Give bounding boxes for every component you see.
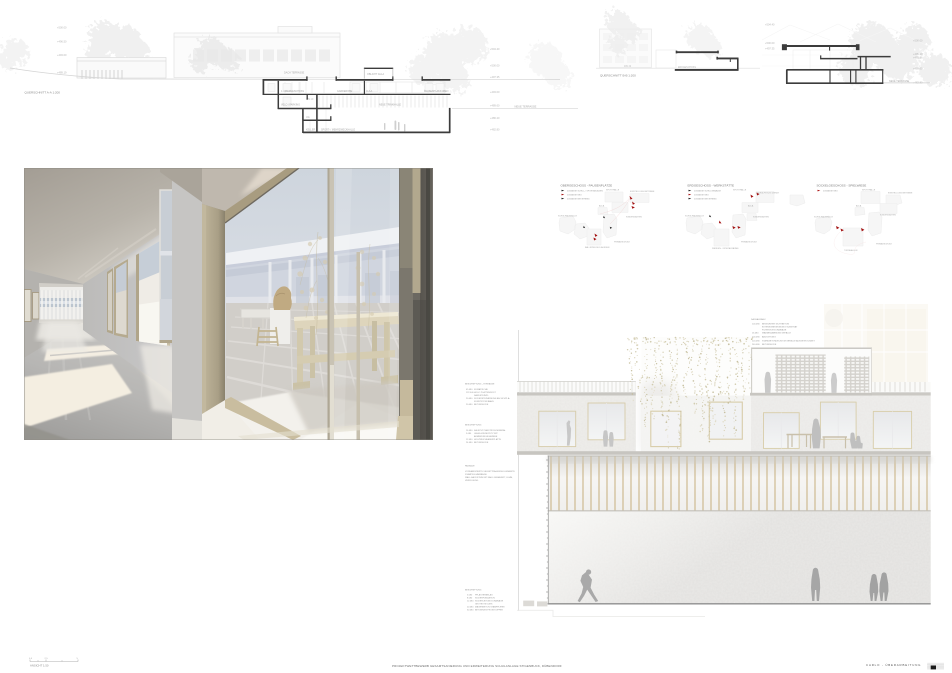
svg-text:ERDGESCHOSS: ERDGESCHOSS bbox=[678, 67, 696, 69]
svg-text:BESCHRIFTUNG - TERRASSE: BESCHRIFTUNG - TERRASSE bbox=[465, 383, 495, 386]
svg-text:+486.20: +486.20 bbox=[490, 116, 500, 120]
svg-text:20.080: 20.080 bbox=[467, 607, 474, 609]
svg-text:16.080: 16.080 bbox=[466, 430, 473, 432]
svg-text:KELLER: KELLER bbox=[306, 129, 315, 132]
svg-text:+489.60: +489.60 bbox=[913, 66, 923, 70]
svg-text:1. OBERGESCHOSS: 1. OBERGESCHOSS bbox=[281, 90, 304, 93]
svg-text:5.080: 5.080 bbox=[466, 433, 472, 435]
svg-text:STAMPFLEHMWÄNDE: STAMPFLEHMWÄNDE bbox=[465, 473, 487, 476]
svg-text:GEOTEXTILVLIES: GEOTEXTILVLIES bbox=[475, 604, 493, 606]
svg-text:220.080: 220.080 bbox=[752, 341, 760, 343]
svg-text:100.080: 100.080 bbox=[752, 324, 760, 326]
svg-text:SCHULHAUSRÜLLR: SCHULHAUSRÜLLR bbox=[685, 214, 704, 217]
svg-text:+504.40: +504.40 bbox=[765, 23, 775, 27]
svg-text:KINDERGARTEN: KINDERGARTEN bbox=[626, 215, 642, 218]
svg-text:SANDSTEINPL.: SANDSTEINPL. bbox=[474, 394, 489, 397]
svg-text:SICKERSTEINBRECHE AN SICHTLA-: SICKERSTEINBRECHE AN SICHTLA- bbox=[474, 397, 510, 400]
svg-text:MAGERBETON STAMPFLEHM: MAGERBETON STAMPFLEHM bbox=[475, 606, 505, 609]
svg-text:24.080: 24.080 bbox=[466, 442, 473, 444]
svg-text:16.080: 16.080 bbox=[752, 333, 759, 335]
svg-text:ARMIERUNGSGEWEBE: ARMIERUNGSGEWEBE bbox=[474, 435, 498, 438]
svg-text:ERDGESCHOSS - WERKSTÄTTE: ERDGESCHOSS - WERKSTÄTTE bbox=[688, 184, 735, 188]
svg-text:NEUE TERRASSE: NEUE TERRASSE bbox=[889, 80, 910, 83]
svg-text:EINSTELLUNG BETRIEBE: EINSTELLUNG BETRIEBE bbox=[630, 191, 655, 193]
svg-text:+497.35: +497.35 bbox=[765, 46, 775, 50]
svg-text:FILTERVLIES DRAINAGE: FILTERVLIES DRAINAGE bbox=[762, 329, 787, 332]
svg-text:VELO / PARKING: VELO / PARKING bbox=[281, 104, 300, 107]
svg-text:489.19: 489.19 bbox=[624, 66, 632, 68]
svg-text:+482.80: +482.80 bbox=[490, 128, 500, 132]
svg-text:SPORT- / MEHRZWECKHALLE: SPORT- / MEHRZWECKHALLE bbox=[321, 129, 355, 132]
svg-text:HOLZWEICHFASERPLATTE: HOLZWEICHFASERPLATTE bbox=[474, 438, 502, 441]
svg-text:FASSADE: FASSADE bbox=[465, 465, 475, 468]
svg-text:30.080: 30.080 bbox=[467, 610, 474, 612]
svg-text:DACHAUFBAU: DACHAUFBAU bbox=[751, 318, 766, 321]
svg-text:+497.35: +497.35 bbox=[490, 75, 500, 79]
svg-text:ANSICHT 1:50: ANSICHT 1:50 bbox=[30, 664, 49, 668]
svg-text:KINDERGARTEN: KINDERGARTEN bbox=[880, 213, 896, 216]
svg-text:SCHULHAUSRÜLLR: SCHULHAUSRÜLLR bbox=[814, 215, 833, 218]
svg-text:HOLZ- PLATTENROST: HOLZ- PLATTENROST bbox=[474, 391, 497, 394]
svg-text:+493.00: +493.00 bbox=[57, 53, 67, 57]
svg-text:BETONKIES FROSTKOFFER: BETONKIES FROSTKOFFER bbox=[475, 610, 503, 612]
svg-text:12.080: 12.080 bbox=[467, 601, 474, 603]
svg-text:KINDERGARTEN: KINDERGARTEN bbox=[753, 215, 769, 218]
svg-text:GARDEROBE: GARDEROBE bbox=[337, 90, 353, 93]
svg-text:+495.10: +495.10 bbox=[913, 52, 923, 56]
svg-text:5.080: 5.080 bbox=[467, 595, 473, 597]
svg-text:KALKPUTZ ANSTRICH MINERAL: KALKPUTZ ANSTRICH MINERAL bbox=[474, 429, 506, 432]
svg-text:TURNHALLEN: TURNHALLEN bbox=[844, 249, 858, 252]
svg-text:ZUGÄNGE SCHUL- / SPORTANLAGEN: ZUGÄNGE SCHUL- / SPORTANLAGEN bbox=[567, 190, 603, 193]
svg-text:BALLSPIELFELD AUSSEN: BALLSPIELFELD AUSSEN bbox=[585, 246, 610, 249]
svg-text:ABDICHTUNG: ABDICHTUNG bbox=[762, 336, 776, 339]
svg-text:SCHULPSYCH. DIENST: SCHULPSYCH. DIENST bbox=[757, 192, 780, 194]
svg-text:QUERSCHNITT A-A 1:200: QUERSCHNITT A-A 1:200 bbox=[25, 91, 61, 95]
svg-text:WALL-BACKSTEIN MIT KALK GEMAUE: WALL-BACKSTEIN MIT KALK GEMAUERT, LEHM, bbox=[465, 476, 513, 479]
svg-text:BESCHRIFTUNG: BESCHRIFTUNG bbox=[465, 425, 482, 427]
svg-text:WÄRMEDÄMMUNG GEFÄLLE: WÄRMEDÄMMUNG GEFÄLLE bbox=[762, 332, 791, 335]
svg-text:+493.00: +493.00 bbox=[490, 90, 500, 94]
svg-text:OBLICHT AULA: OBLICHT AULA bbox=[367, 73, 384, 76]
svg-text:EINSTELLUNG BETRIEBE: EINSTELLUNG BETRIEBE bbox=[888, 192, 913, 194]
svg-text:+496.50: +496.50 bbox=[57, 40, 67, 44]
svg-text:SPORTHALLE: SPORTHALLE bbox=[862, 188, 876, 191]
svg-text:240.080: 240.080 bbox=[752, 344, 760, 346]
svg-text:WERKEN- / SPEZIALRÄUME: WERKEN- / SPEZIALRÄUME bbox=[712, 247, 739, 250]
svg-text:SCHULHAUSRÜLLR: SCHULHAUSRÜLLR bbox=[558, 214, 577, 217]
svg-text:BETONDECKE: BETONDECKE bbox=[474, 404, 489, 406]
svg-text:KLIMATISCHE: KLIMATISCHE bbox=[474, 388, 488, 391]
svg-text:CARLO - ÜBERARBEITUNG: CARLO - ÜBERARBEITUNG bbox=[866, 663, 921, 667]
svg-text:BEGRÜNTER SICHTBETON: BEGRÜNTER SICHTBETON bbox=[762, 323, 789, 326]
svg-text:ZUGÄNGE NEU: ZUGÄNGE NEU bbox=[694, 194, 709, 197]
svg-text:BETONDECKE: BETONDECKE bbox=[762, 344, 777, 346]
svg-text:45.080: 45.080 bbox=[466, 389, 473, 391]
svg-text:+489.60: +489.60 bbox=[490, 104, 500, 108]
svg-text:NEUE TERRASSE: NEUE TERRASSE bbox=[515, 104, 537, 108]
svg-text:AULA: AULA bbox=[366, 90, 373, 93]
svg-text:AULA: AULA bbox=[856, 204, 862, 207]
svg-text:SPORTHALLE: SPORTHALLE bbox=[606, 188, 620, 191]
svg-text:8.080: 8.080 bbox=[467, 598, 473, 600]
svg-text:SPORTHALLE: SPORTHALLE bbox=[733, 188, 747, 191]
svg-text:OBERGESCHOSS - PAUSENPLÄTZE: OBERGESCHOSS - PAUSENPLÄTZE bbox=[561, 184, 613, 188]
svg-text:AULA: AULA bbox=[748, 204, 754, 207]
svg-text:+489.19: +489.19 bbox=[57, 70, 67, 74]
svg-text:QUERSCHNITT B-B 1:200: QUERSCHNITT B-B 1:200 bbox=[600, 73, 636, 77]
svg-text:+493.96: +493.96 bbox=[913, 55, 923, 59]
svg-text:PROJEKTWETTBEWERB GESAMTSANIE: PROJEKTWETTBEWERB GESAMTSANIERUNG UND ER… bbox=[392, 664, 562, 668]
svg-text:SICKERLEITUNG DRAINAGE: SICKERLEITUNG DRAINAGE bbox=[475, 600, 504, 603]
svg-text:AULA: AULA bbox=[599, 204, 605, 207]
svg-text:+500.00: +500.00 bbox=[765, 41, 775, 45]
svg-text:ZUGÄNGE SCHULGEBÄUDE: ZUGÄNGE SCHULGEBÄUDE bbox=[694, 190, 722, 193]
svg-text:LEHM-GRUNDPUTZ MIT: LEHM-GRUNDPUTZ MIT bbox=[474, 433, 498, 435]
svg-text:PAUSENPLATZ OBEN: PAUSENPLATZ OBEN bbox=[424, 90, 449, 93]
svg-text:PRIMARSCHULE: PRIMARSCHULE bbox=[741, 240, 758, 243]
svg-text:STAHLBETONDECKE IM GEFÄLLE AUS: STAHLBETONDECKE IM GEFÄLLE AUSGETROCKNET bbox=[762, 340, 816, 343]
svg-text:12.080: 12.080 bbox=[466, 439, 473, 441]
svg-text:ZUGÄNGE NEU: ZUGÄNGE NEU bbox=[823, 190, 838, 193]
svg-text:20.080: 20.080 bbox=[466, 404, 473, 406]
svg-text:20.080: 20.080 bbox=[466, 398, 473, 400]
svg-text:VORFABRIZIERTE SELBSTTRAGENDE: VORFABRIZIERTE SELBSTTRAGENDE ELEMENTE bbox=[465, 470, 515, 473]
svg-text:+500.00: +500.00 bbox=[490, 64, 500, 68]
svg-text:EXTENSIVBEGRÜNUNG SUBSTRAT: EXTENSIVBEGRÜNUNG SUBSTRAT bbox=[762, 326, 798, 329]
svg-text:BESCHRIFTUNG: BESCHRIFTUNG bbox=[465, 590, 482, 592]
svg-text:SOCKELGESCHOSS - SPIELWIESE: SOCKELGESCHOSS - SPIELWIESE bbox=[817, 184, 867, 188]
svg-text:VERFUGUNG: VERFUGUNG bbox=[465, 480, 479, 482]
svg-text:200.080: 200.080 bbox=[752, 337, 760, 339]
svg-text:+504.40: +504.40 bbox=[490, 47, 500, 51]
svg-text:BETONDECKE: BETONDECKE bbox=[474, 442, 489, 444]
svg-text:+482.80: +482.80 bbox=[913, 80, 923, 84]
svg-text:DACH TERRASSE: DACH TERRASSE bbox=[284, 71, 305, 74]
svg-text:PRIMARSCHULE: PRIMARSCHULE bbox=[876, 242, 893, 245]
svg-text:+500.00: +500.00 bbox=[57, 25, 67, 29]
svg-text:ZUGÄNGE NEU: ZUGÄNGE NEU bbox=[567, 194, 582, 197]
svg-text:PFLASTERBELAG: PFLASTERBELAG bbox=[475, 594, 493, 597]
svg-text:ZUGÄNGE BESTEHEND: ZUGÄNGE BESTEHEND bbox=[567, 198, 590, 201]
svg-text:UG: UG bbox=[306, 116, 310, 119]
svg-text:PRIMARSCHULE: PRIMARSCHULE bbox=[614, 240, 631, 243]
svg-text:NEUE TRINKHALLE: NEUE TRINKHALLE bbox=[379, 104, 401, 107]
svg-text:ZUGÄNGE BESTEHEND: ZUGÄNGE BESTEHEND bbox=[694, 198, 717, 201]
svg-text:KUNSTSTOFFBAHN: KUNSTSTOFFBAHN bbox=[474, 400, 494, 403]
svg-text:SICKERFUNDATION: SICKERFUNDATION bbox=[475, 597, 495, 600]
svg-text:+500.00: +500.00 bbox=[913, 38, 923, 42]
